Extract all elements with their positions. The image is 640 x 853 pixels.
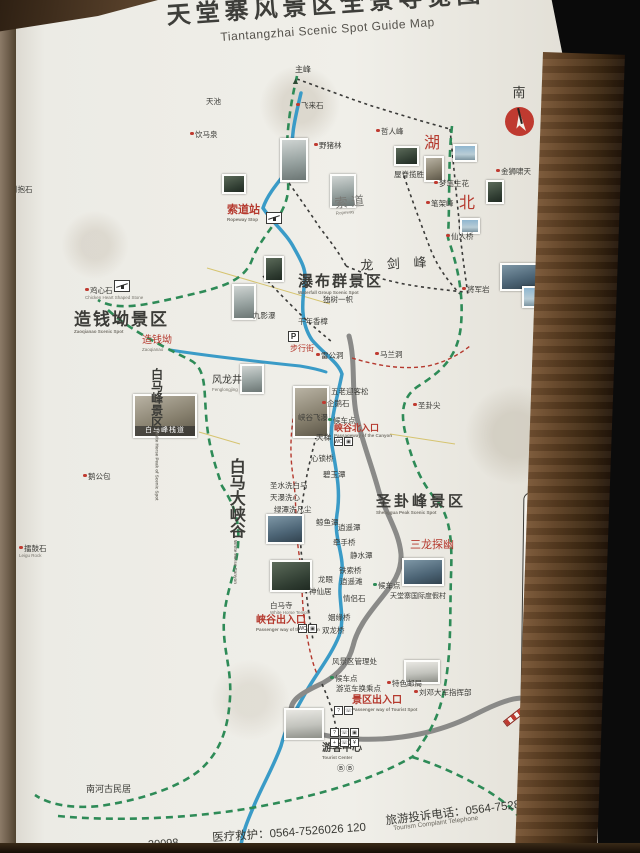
spot-label: 鹅公包 [83,473,111,481]
spot-label: 九影瀑 [253,312,276,320]
index-line [390,434,455,444]
spot-label: 情侣石 [343,595,366,603]
compass: 南 [505,82,534,136]
spot-dot [413,403,417,407]
label-english: Shenggua Peak Scenic Spot [376,511,466,516]
spot-label: 神仙居 [309,588,332,596]
spot-label: 五老迎客松 [331,388,369,396]
photo-thumbnail: 白马峰栈道 [133,394,197,438]
spot-label: 将军岩 [462,286,490,294]
spot-label: 野猪林 [314,142,342,150]
photo-thumbnail [293,386,329,438]
spot-label: 逍遥滩 [340,578,363,586]
spot-label: 饮马泉 [190,131,218,139]
spot-label: 风景区管理处 [332,658,377,666]
spot-label: 企鹅石 [322,400,350,408]
ropeway-icon [266,212,282,224]
photo-thumbnail [264,256,284,282]
photo-of-map-sign: 天堂寨风景区全景导览图 Tiantangzhai Scenic Spot Gui… [0,0,640,853]
region-label: 南河古民居 [86,785,131,794]
facility-icon: ? [334,706,343,715]
facility-icon: ☏ [340,738,349,747]
facility-icons: WC▣ [334,437,356,446]
spot-label: 哲人峰 [376,128,404,136]
spot-label: 金狮啸天 [496,168,531,176]
facility-icon: Ⓑ [346,763,354,774]
spot-label: 屋脊揽胜 [394,171,424,179]
spot-label: 绿潭洗凡尘 [274,506,312,514]
photo-thumbnail [394,146,419,166]
spot-label: 峡谷飞瀑 [298,414,328,422]
compass-rose-icon [505,107,534,136]
spot-label: 静水潭 [350,552,373,560]
spot-label: 飞来石 [296,102,324,110]
spot-label: 游览车换乘点 [336,685,381,693]
spot-label: 姻缘桥 [328,614,351,622]
spot-dot [462,287,466,291]
facility-icons: WC▣ [298,624,320,633]
spot-dot [83,474,87,478]
facility-icons: ⒷⒷ [337,763,359,774]
spot-label: 擂鼓石Leigu Rock [19,545,47,559]
peak-icon: ▲ [291,76,300,86]
wooden-frame-bottom [0,843,640,853]
label-english: Zaoqianao [142,348,172,353]
spot-label: 铁索桥 [339,567,362,575]
spot-dot [316,353,320,357]
spot-label: 梦笔生花 [434,180,469,188]
wooden-frame-left [0,0,16,853]
region-label: 造钱坳景区Zaoqianao Scenic Spot [74,311,169,335]
spot-label: 牵手桥 [333,539,356,547]
ropeway-icon [114,280,130,292]
index-line [199,432,240,444]
facility-icon: WC [334,437,343,446]
spot-dot [322,401,326,405]
spot-label: 逍遥潭 [338,524,361,532]
spot-label: 天瀑洗心 [270,494,300,502]
spot-label: 刘邓大军指挥部 [414,689,472,697]
label-english: Fenglongjing [212,388,242,393]
facility-icon: ▣ [308,624,317,633]
spot-label: 候车点 [328,417,356,425]
spot-label: 碧玉潭 [323,471,346,479]
spot-dot [446,234,450,238]
label-english: White Horse Temple [270,611,310,616]
region-label: 索 道Ropeway [334,194,365,216]
spot-label: 候车点 [373,582,401,590]
region-label: 造钱坳Zaoqianao [142,336,172,352]
spot-dot [434,181,438,185]
facility-icon: WC [298,624,307,633]
waiting-point-dot [330,676,334,680]
spot-label: 天池 [206,98,221,106]
spot-dot [85,288,89,292]
spot-label: 特色邮局 [387,680,422,688]
spot-label: 独树一帜 [323,296,353,304]
label-english: Chicken Heart Shaped Stone [85,296,143,301]
spot-dot [190,132,194,136]
region-label: 天堂寨国际度假村 [390,593,446,600]
photo-thumbnail [453,144,477,162]
spot-dot [296,103,300,107]
facility-icon: + [330,738,339,747]
region-label: 主峰 [295,66,311,74]
spot-dot [314,143,318,147]
photo-thumbnail [240,364,264,394]
spot-dot [426,201,430,205]
region-label: 索道站Ropeway Stop [227,205,260,222]
region-label: 三龙探幽 [410,540,454,552]
spot-dot [496,169,500,173]
region-label: 圣卦峰景区Shenggua Peak Scenic Spot [376,494,466,515]
label-english: Ropeway Stop [227,218,260,223]
facility-icon: Ⓑ [337,763,345,774]
label-english: Passenger way of Tourist Spot [352,708,417,713]
spot-label: 鲸鱼潭 [316,519,339,527]
spot-dot [19,546,23,550]
spot-dot [387,681,391,685]
label-english: White Horse Peak of Scenic Spot [154,430,159,501]
region-label: 风龙井Fenglongjing [212,376,242,392]
waiting-point-dot [328,418,332,422]
spot-label: 天梯 [316,434,331,442]
facility-icon-grid: ?☏▣+☏¥ [330,728,360,747]
spot-dot [375,352,379,356]
spot-label: 龙眼 [318,576,333,584]
spot-label: 心锁桥 [311,455,334,463]
photo-thumbnail [402,558,444,586]
photo-thumbnail [280,138,308,182]
region-label: 湖 [424,136,440,153]
region-label: 步行街 [290,345,314,353]
spot-dot [376,129,380,133]
facility-icon: ☏ [344,706,353,715]
label-english: White Horse Canyon [232,540,237,584]
facility-icon: ▣ [350,728,359,737]
photo-thumbnail [222,174,246,194]
waiting-point-dot [373,583,377,587]
parking-icon: P [288,331,299,342]
facility-icon: ☏ [340,728,349,737]
photo-thumbnail [284,708,324,740]
region-label: 北 [459,196,475,213]
facility-icon: ▣ [344,437,353,446]
spot-label: 仙人桥 [446,233,474,241]
spot-dot [414,690,418,694]
photo-thumbnail [486,180,504,204]
label-english: Leigu Rock [19,554,47,559]
facility-icon: ? [330,728,339,737]
spot-label: 马兰洞 [375,351,403,359]
label-english: Tourist Center [322,756,362,761]
facility-icon: ¥ [350,738,359,747]
region-label: 瀑布群景区Waterfall Group Scenic Spot [298,274,383,295]
region-label: 景区出入口Passenger way of Tourist Spot [352,696,417,712]
spot-label: 双龙桥 [322,627,345,635]
spot-label: 千年香樟 [298,318,328,326]
photo-thumbnail [270,560,312,592]
spot-label: 圣卦尖 [413,402,441,410]
region-label: 白马大峡谷White Horse Canyon [226,458,243,584]
spot-label: 笔架峰 [426,200,454,208]
spot-label: 白马寺White Horse Temple [270,602,310,616]
photo-thumbnail [266,514,304,544]
region-label: 白马峰景区White Horse Peak of Scenic Spot [150,368,163,501]
label-english: Zaoqianao Scenic Spot [74,330,169,335]
spot-label: 候车点 [330,675,358,683]
spot-label: 雷公洞 [316,352,344,360]
compass-south-label: 南 [505,82,534,101]
facility-icons: ?☏ [334,706,356,715]
spot-label: 圣水洗白马 [270,482,308,490]
photo-caption: 白马峰栈道 [135,426,195,436]
